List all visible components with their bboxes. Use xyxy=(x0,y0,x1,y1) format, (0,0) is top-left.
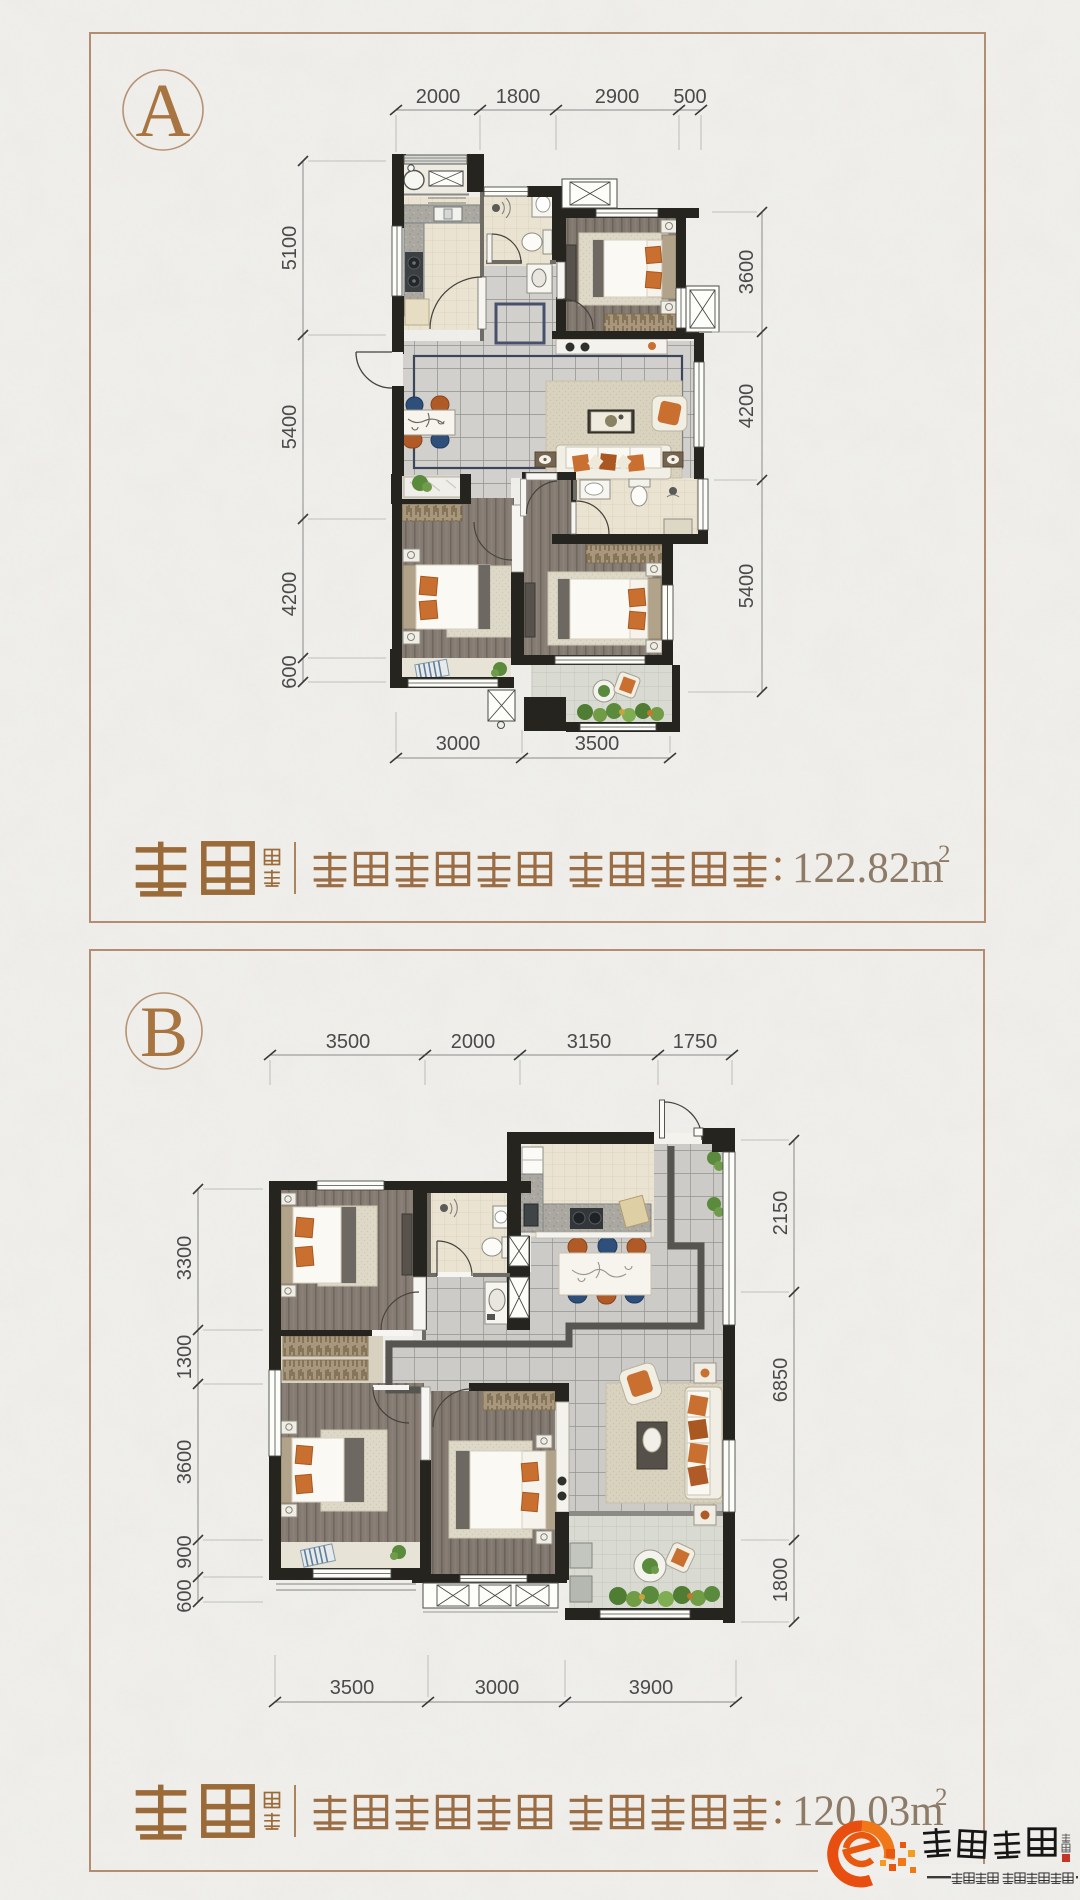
svg-text:3600: 3600 xyxy=(174,1440,196,1485)
svg-text:A: A xyxy=(136,69,191,153)
svg-text:3600: 3600 xyxy=(736,250,758,295)
svg-text:2: 2 xyxy=(938,841,951,868)
svg-text:600: 600 xyxy=(174,1579,196,1612)
svg-text:1800: 1800 xyxy=(770,1558,792,1603)
svg-text:5100: 5100 xyxy=(279,226,301,271)
svg-text:1300: 1300 xyxy=(174,1335,196,1380)
svg-text:3500: 3500 xyxy=(575,733,620,755)
svg-text:5400: 5400 xyxy=(736,564,758,609)
svg-text:3150: 3150 xyxy=(567,1031,612,1053)
svg-text:2: 2 xyxy=(935,1784,948,1811)
svg-text:2150: 2150 xyxy=(770,1191,792,1236)
svg-text:1750: 1750 xyxy=(673,1031,718,1053)
svg-text:122.82m: 122.82m xyxy=(792,845,944,892)
svg-text:3500: 3500 xyxy=(326,1031,371,1053)
svg-text:3000: 3000 xyxy=(436,733,481,755)
svg-text:2000: 2000 xyxy=(451,1031,496,1053)
svg-text:3000: 3000 xyxy=(475,1677,520,1699)
svg-text:5400: 5400 xyxy=(279,405,301,450)
svg-text:900: 900 xyxy=(174,1535,196,1568)
svg-text:2900: 2900 xyxy=(595,86,640,108)
svg-text:1800: 1800 xyxy=(496,86,541,108)
svg-text:500: 500 xyxy=(673,86,706,108)
svg-text:6850: 6850 xyxy=(770,1358,792,1403)
svg-text:4200: 4200 xyxy=(279,572,301,617)
svg-text:2000: 2000 xyxy=(416,86,461,108)
svg-text:3500: 3500 xyxy=(330,1677,375,1699)
svg-text:B: B xyxy=(140,992,188,1072)
svg-text:4200: 4200 xyxy=(736,384,758,429)
svg-text:600: 600 xyxy=(279,655,301,688)
svg-text:3300: 3300 xyxy=(174,1236,196,1281)
svg-text:3900: 3900 xyxy=(629,1677,674,1699)
